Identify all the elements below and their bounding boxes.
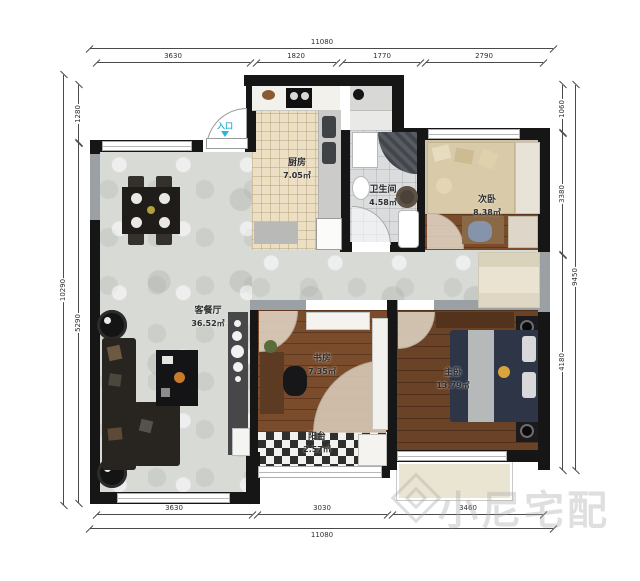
sofa-chaise [134,402,180,466]
sink [322,142,336,164]
desk-plant [264,340,277,353]
bathroom-name: 卫生间 [369,184,397,197]
balcony-cabinet [358,434,387,466]
plate [159,217,170,228]
bath-plant-stool [396,186,418,208]
master-door-opening [398,300,434,310]
dim-left-seg1: 1280 [74,104,82,124]
bed-runner [468,330,494,422]
dim-right-seg2: 3380 [558,184,566,204]
study-top-closet-band [306,300,390,310]
sofa-pillow [107,427,122,440]
bedroom2-name: 次卧 [473,194,501,207]
master-label: 主卧 13.79㎡ [436,367,469,391]
window-master-bottom [397,451,507,461]
window-left-wall [90,154,100,220]
bath-sink [352,176,370,200]
shower-tray [352,132,378,168]
floorplan-page: { "entrance": { "label": "入口" }, "rooms"… [0,0,640,581]
living-area: 36.52㎡ [191,318,224,329]
bathtub [398,210,419,248]
dim-line-top-total [90,48,553,49]
dim-line-bottom-1 [97,514,252,515]
bedroom2-wardrobe [515,142,540,214]
centerpiece [147,206,155,214]
dim-bottom-seg2: 3030 [313,504,331,512]
burner [290,92,298,100]
kitchen-area: 7.05㎡ [283,170,311,181]
entrance-arrow-icon [221,131,229,141]
pillow [454,148,474,165]
round-lounge-chair [97,310,127,340]
entrance-label: 入口 [217,121,233,132]
bedroom2-label: 次卧 8.38㎡ [473,194,501,218]
decor-plate [231,345,244,358]
chair-cushion [104,317,111,324]
accent-pillow [498,366,510,378]
window-bedroom2-top [428,129,520,139]
study-name: 书房 [308,353,336,366]
dim-left-seg2: 5290 [74,313,82,333]
plate [131,193,142,204]
master-name: 主卧 [436,367,469,380]
dim-right-total: 9450 [571,267,579,287]
fridge [316,218,342,250]
wall-study-master-divider [387,300,397,470]
round-pillow [436,178,452,194]
corridor-cabinet [478,252,540,308]
desk-chair-blue [468,221,492,242]
plate [159,193,170,204]
sofa-pillow [107,345,123,361]
dim-line-top-4 [426,62,543,63]
study-shelf-top [306,312,370,330]
dim-right-seg3: 4180 [558,352,566,372]
kitchen-mat [254,222,298,244]
balcony-name: 阳台 [303,431,331,444]
living-label: 客餐厅 36.52㎡ [191,305,224,329]
kitchen-name: 厨房 [283,157,311,170]
living-name: 客餐厅 [191,305,224,318]
tv-cabinet-panel [232,428,250,456]
master-dresser [436,312,514,328]
plate [131,217,142,228]
floorplan-canvas: 厨房 7.05㎡ 卫生间 4.58㎡ 次卧 8.38㎡ 客餐厅 36.52㎡ 书… [0,0,640,581]
burner [301,92,309,100]
decor-plate [234,320,241,327]
kitchen-bowl [262,90,275,100]
table-tray [162,356,173,364]
master-area: 13.79㎡ [436,380,469,391]
study-chair [283,366,307,396]
wall-study-left [250,310,258,470]
dim-line-top-3 [343,62,420,63]
window-living-bottom [117,493,230,503]
study-area: 7.35㎡ [308,366,336,377]
table-decor [161,388,170,397]
sink [322,116,336,138]
balcony-window-post-left [250,466,258,478]
study-wardrobe [372,318,388,430]
window-balcony [258,466,382,478]
dim-bottom-seg1: 3630 [165,504,183,512]
dim-bottom-total: 11080 [311,531,333,539]
dim-line-top-2 [257,62,336,63]
wall-living-corner [246,452,260,504]
flower-decor [174,372,185,383]
balcony-window-post-right [382,466,390,478]
window-living-top [102,141,192,151]
wall-top-kitchen [244,75,404,86]
kettle [353,89,364,100]
dim-top-seg1: 3630 [164,52,182,60]
pillow [522,372,536,398]
dim-top-total: 11080 [311,38,333,46]
dim-left-total: 10290 [59,278,67,302]
decor-plate [232,331,242,341]
bathroom-area: 4.58㎡ [369,197,397,208]
bedroom2-area: 8.38㎡ [473,207,501,218]
dim-line-top-1 [97,62,250,63]
bedroom2-shelf [508,216,538,248]
sofa-pillow [108,373,122,387]
dim-top-seg2: 1820 [287,52,305,60]
watermark-brand: 小尼宅配 [438,478,610,536]
kitchen-label: 厨房 7.05㎡ [283,157,311,181]
balcony-label: 阳台 2.57㎡ [303,431,331,455]
dim-top-seg4: 2790 [475,52,493,60]
study-desk [260,352,284,414]
dim-right-seg1: 1060 [558,99,566,119]
decor-plate [235,376,241,382]
pillow [522,336,536,362]
bathroom-label: 卫生间 4.58㎡ [369,184,397,208]
vinyl-decor [520,424,534,438]
balcony-area: 2.57㎡ [303,444,331,455]
dim-top-seg3: 1770 [373,52,391,60]
decor-plate [233,362,243,372]
dim-line-bottom-2 [258,514,387,515]
study-label: 书房 7.35㎡ [308,353,336,377]
